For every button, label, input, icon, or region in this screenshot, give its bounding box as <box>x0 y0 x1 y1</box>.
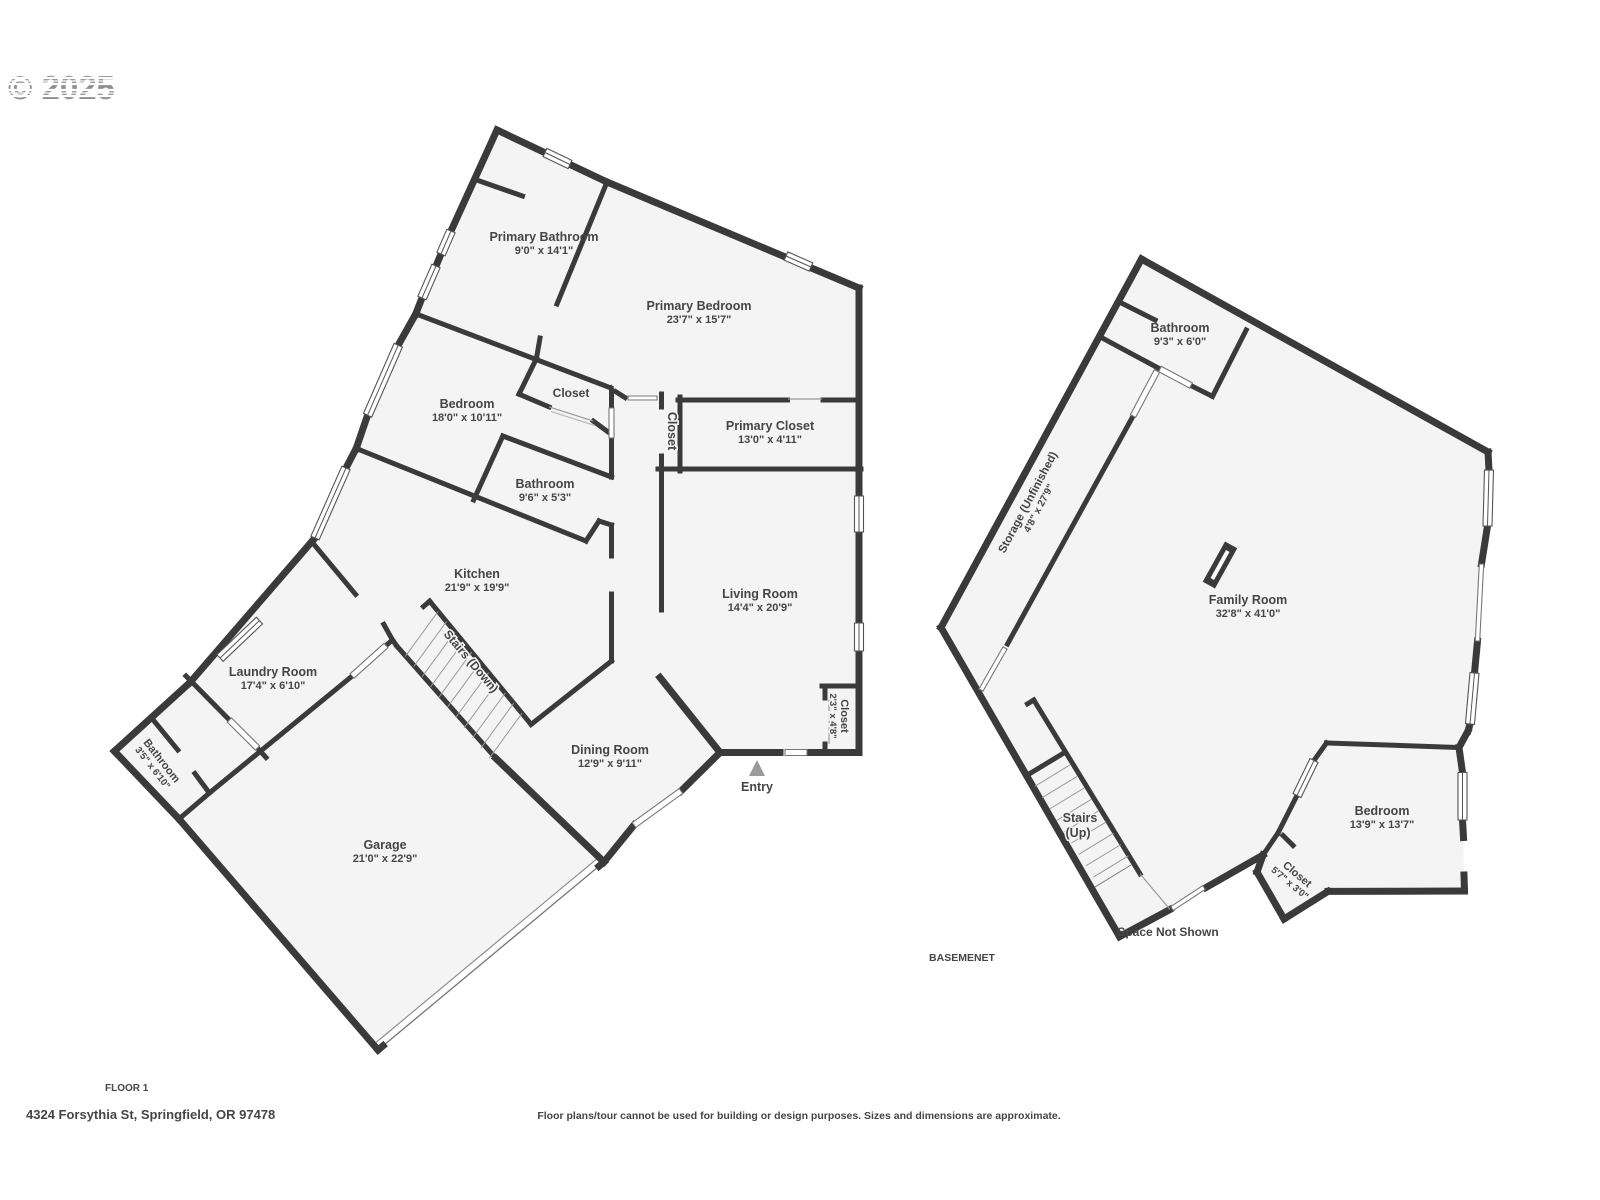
svg-text:12'9" x 9'11": 12'9" x 9'11" <box>578 758 642 770</box>
svg-text:17'4" x 6'10": 17'4" x 6'10" <box>241 680 306 692</box>
svg-text:Primary Bathroom: Primary Bathroom <box>489 230 598 244</box>
svg-text:Closet: Closet <box>553 386 590 400</box>
svg-text:2'3" x 4'8": 2'3" x 4'8" <box>827 693 838 738</box>
svg-text:Primary Closet: Primary Closet <box>726 419 815 433</box>
svg-text:Closet: Closet <box>838 699 850 733</box>
svg-text:Living Room: Living Room <box>722 587 798 601</box>
svg-text:23'7" x 15'7": 23'7" x 15'7" <box>667 314 732 326</box>
svg-text:Primary Bedroom: Primary Bedroom <box>647 299 752 313</box>
svg-text:9'0" x 14'1": 9'0" x 14'1" <box>515 245 573 257</box>
svg-text:Bedroom: Bedroom <box>1355 804 1410 818</box>
svg-text:BASEMENET: BASEMENET <box>929 952 996 964</box>
svg-text:Family Room: Family Room <box>1209 593 1288 607</box>
svg-text:18'0" x 10'11": 18'0" x 10'11" <box>432 412 502 424</box>
svg-text:13'0" x 4'11": 13'0" x 4'11" <box>738 434 802 446</box>
svg-text:Closet: Closet <box>665 412 679 451</box>
svg-text:4324 Forsythia St, Springfield: 4324 Forsythia St, Springfield, OR 97478 <box>26 1107 275 1122</box>
svg-text:Bathroom: Bathroom <box>515 477 574 491</box>
svg-text:13'9" x 13'7": 13'9" x 13'7" <box>1350 819 1415 831</box>
svg-text:14'4" x 20'9": 14'4" x 20'9" <box>728 602 793 614</box>
svg-text:Bathroom: Bathroom <box>1150 321 1209 335</box>
svg-text:Laundry Room: Laundry Room <box>229 665 317 679</box>
svg-text:Kitchen: Kitchen <box>454 567 500 581</box>
svg-text:9'6" x 5'3": 9'6" x 5'3" <box>519 492 571 504</box>
svg-text:21'9" x 19'9": 21'9" x 19'9" <box>445 582 510 594</box>
svg-text:Stairs: Stairs <box>1063 811 1098 825</box>
svg-text:Dining Room: Dining Room <box>571 743 649 757</box>
svg-text:Entry: Entry <box>741 780 773 794</box>
svg-text:21'0" x 22'9": 21'0" x 22'9" <box>353 853 418 865</box>
svg-text:(Up): (Up) <box>1066 826 1091 840</box>
svg-text:Space Not Shown: Space Not Shown <box>1117 925 1218 939</box>
svg-text:Floor plans/tour cannot be use: Floor plans/tour cannot be used for buil… <box>537 1110 1060 1122</box>
svg-text:© 2025: © 2025 <box>8 69 115 106</box>
svg-text:FLOOR 1: FLOOR 1 <box>105 1083 149 1094</box>
svg-text:9'3" x 6'0": 9'3" x 6'0" <box>1154 336 1206 348</box>
svg-text:Bedroom: Bedroom <box>440 397 495 411</box>
svg-text:32'8" x 41'0": 32'8" x 41'0" <box>1216 608 1281 620</box>
svg-text:Garage: Garage <box>363 838 406 852</box>
